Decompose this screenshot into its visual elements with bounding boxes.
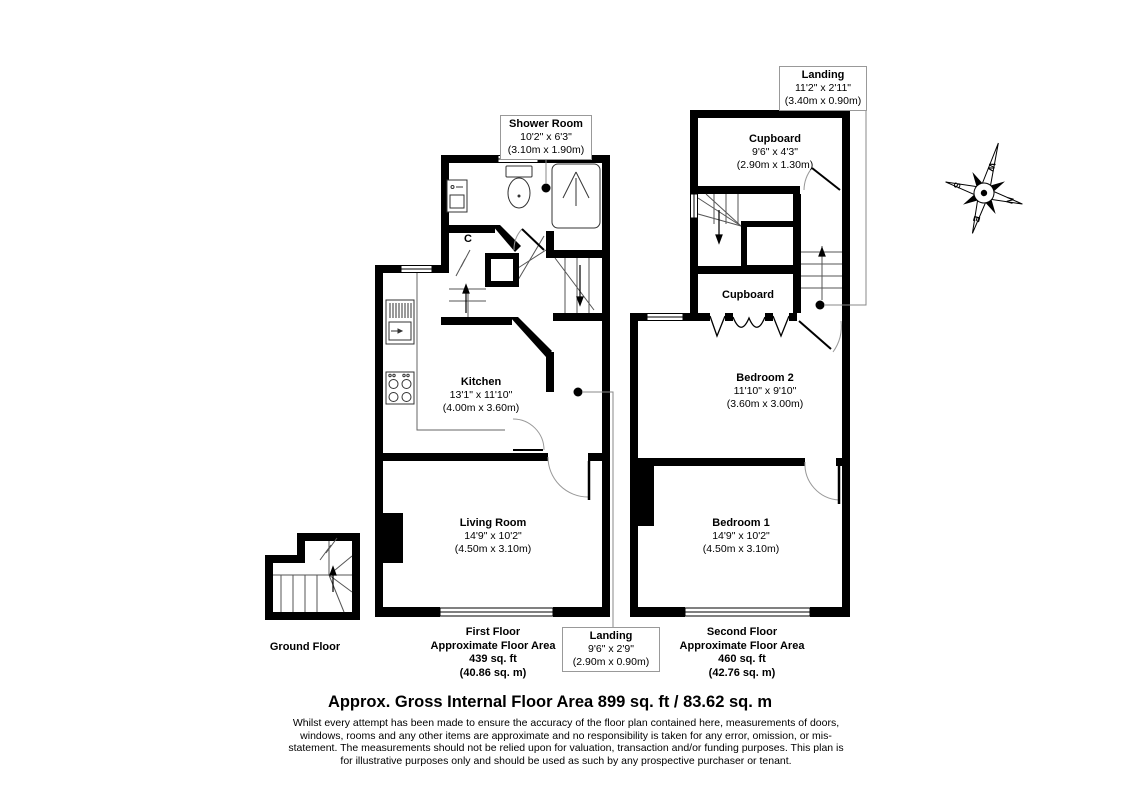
living-room-label: Living Room 14'9" x 10'2" (4.50m x 3.10m… (431, 517, 555, 556)
cupboard-small-label: Cupboard (698, 289, 798, 302)
landing-second-label: Landing 11'2" x 2'11" (3.40m x 0.90m) (779, 66, 867, 111)
stair-arrow-down (716, 210, 722, 243)
door-leaf (799, 321, 831, 349)
toilet-icon (506, 166, 532, 208)
compass-icon: N E S W (934, 132, 1037, 244)
ground-floor-label: Ground Floor (252, 641, 358, 655)
first-floor-area-label: First Floor Approximate Floor Area 439 s… (426, 626, 560, 680)
landing-first-label: Landing 9'6" x 2'9" (2.90m x 0.90m) (562, 627, 660, 672)
door-arc (805, 462, 839, 500)
break-line (456, 250, 470, 276)
leader-dot (574, 388, 583, 397)
stair-arrow-up (819, 248, 825, 256)
kitchen-label: Kitchen 13'1" x 11'10" (4.00m x 3.60m) (420, 376, 542, 415)
door-arc (548, 457, 588, 497)
door-arc (513, 419, 544, 450)
shower-room-label: Shower Room 10'2" x 6'3" (3.10m x 1.90m) (500, 115, 592, 160)
second-floor-doors (799, 168, 841, 504)
first-floor-stairs (449, 236, 594, 317)
ground-floor-stairs (265, 533, 360, 620)
compass-north-label: N (1004, 196, 1015, 205)
ground-floor-treads (273, 538, 352, 612)
door-leaf (522, 229, 544, 250)
door-arc (833, 321, 841, 352)
compass-east-label: E (971, 215, 982, 224)
shower-icon (552, 164, 600, 228)
kitchen-sink-icon (386, 300, 414, 344)
closet-label: C (464, 233, 472, 245)
floorplan-page: N E S W Shower Room 10'2" x 6'3" (3.10m … (0, 0, 1132, 800)
stair-void (488, 256, 516, 284)
page-title: Approx. Gross Internal Floor Area 899 sq… (250, 693, 850, 712)
bifold-doors (710, 316, 789, 336)
bedroom-2-label: Bedroom 2 11'10" x 9'10" (3.60m x 3.00m) (702, 372, 828, 411)
ground-floor-walls (265, 533, 360, 620)
bedroom-1-label: Bedroom 1 14'9" x 10'2" (4.50m x 3.10m) (677, 517, 805, 556)
cupboard-second-label: Cupboard 9'6" x 4'3" (2.90m x 1.30m) (715, 133, 835, 172)
hob-icon (386, 372, 414, 404)
sink-icon (447, 180, 467, 212)
second-floor-area-label: Second Floor Approximate Floor Area 460 … (675, 626, 809, 680)
stair-void (744, 224, 796, 268)
compass-south-label: S (951, 181, 962, 190)
leader-dot (542, 184, 551, 193)
disclaimer-text: Whilst every attempt has been made to en… (281, 717, 851, 767)
leader-dot (816, 301, 825, 310)
